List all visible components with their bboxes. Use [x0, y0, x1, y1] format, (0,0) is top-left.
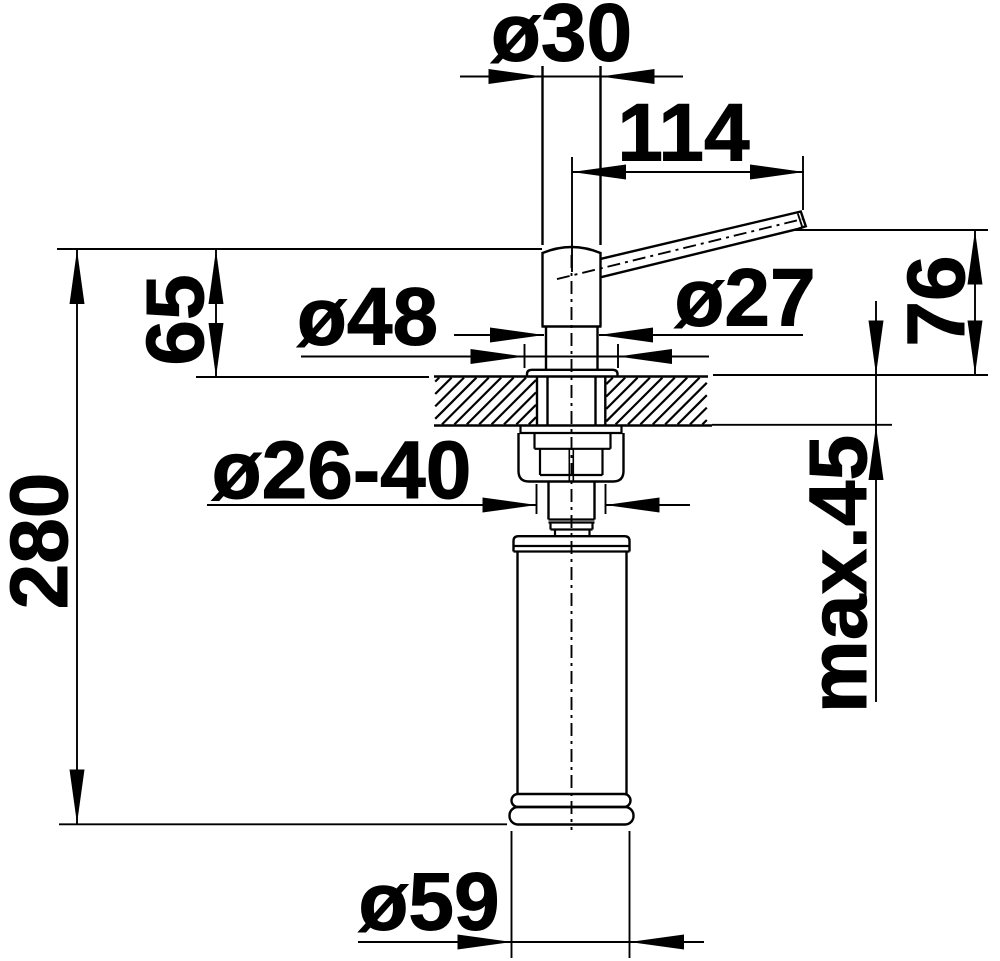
svg-text:65: 65	[130, 274, 221, 365]
svg-text:ø30: ø30	[491, 0, 632, 79]
svg-text:280: 280	[0, 473, 85, 610]
svg-text:76: 76	[891, 255, 982, 346]
svg-text:ø59: ø59	[358, 857, 499, 948]
svg-text:ø27: ø27	[674, 253, 815, 344]
svg-text:ø26-40: ø26-40	[212, 425, 472, 516]
svg-text:114: 114	[617, 88, 750, 179]
svg-text:ø48: ø48	[297, 272, 438, 363]
